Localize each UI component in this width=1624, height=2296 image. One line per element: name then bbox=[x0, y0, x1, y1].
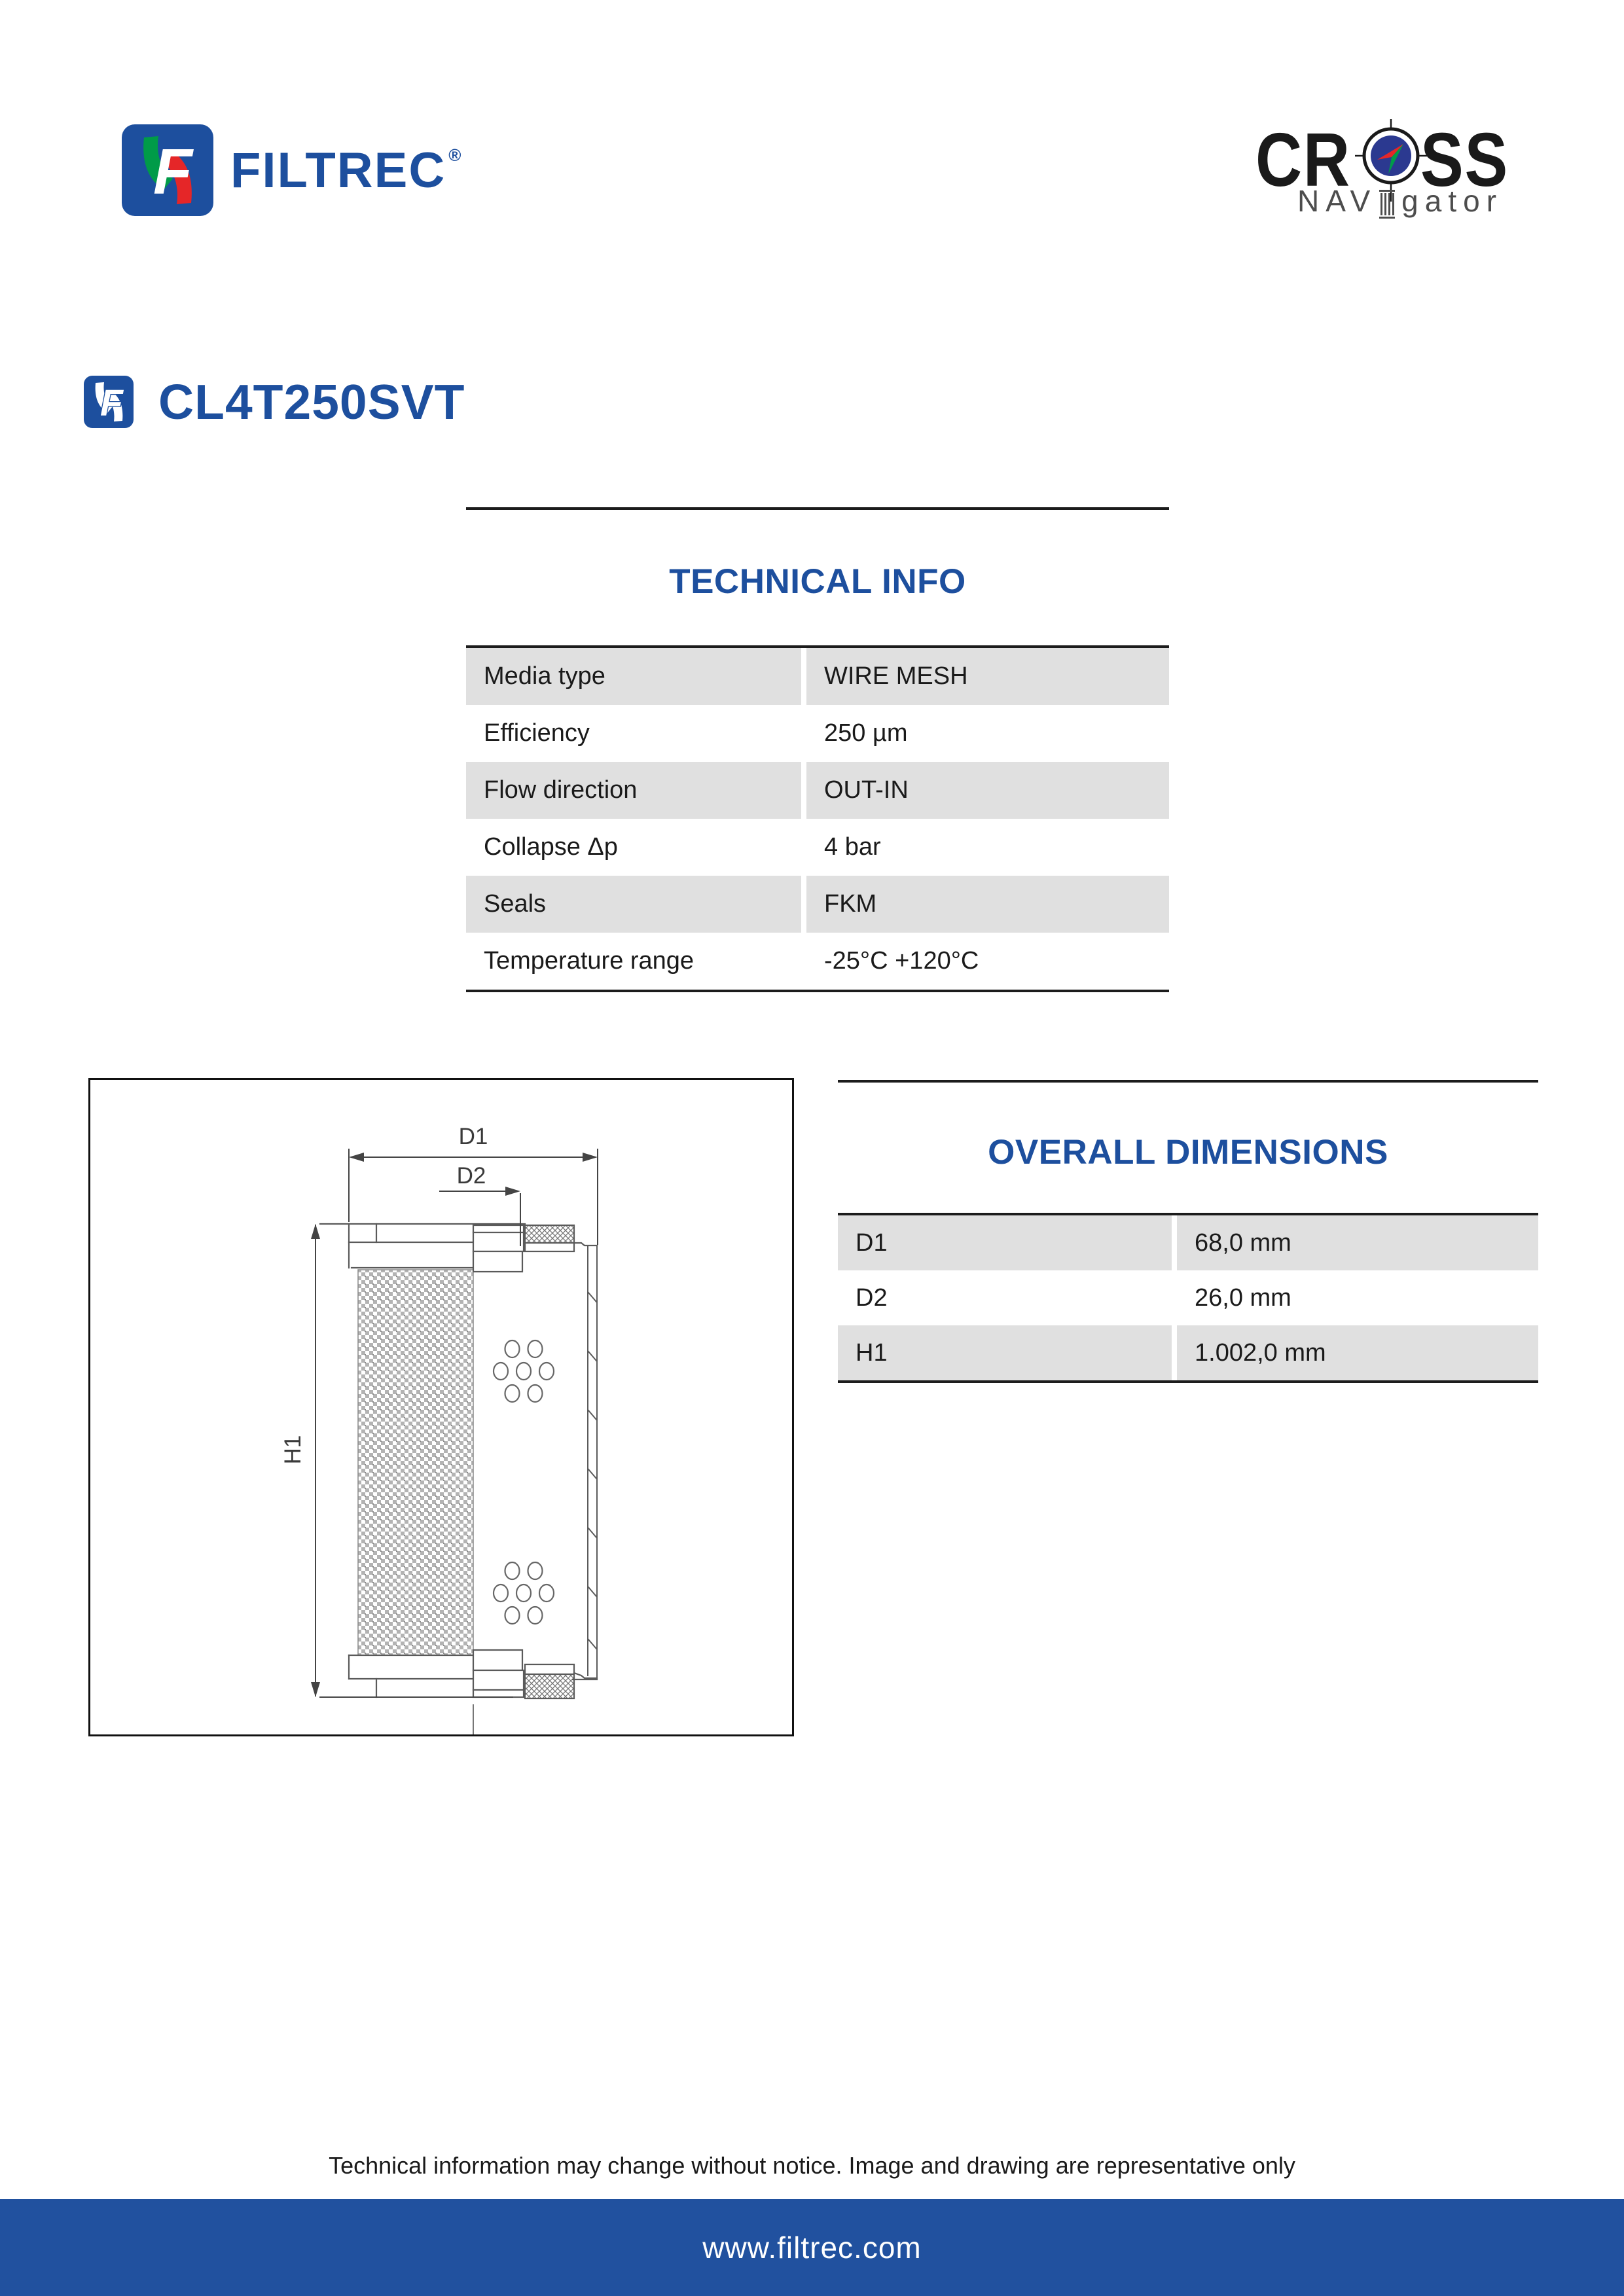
website-url: www.filtrec.com bbox=[702, 2230, 921, 2265]
row-value: FKM bbox=[806, 876, 1169, 933]
filtrec-logo-text: FILTREC bbox=[230, 143, 446, 198]
dim-label-d2: D2 bbox=[457, 1163, 486, 1189]
row-value: 250 µm bbox=[806, 705, 1169, 762]
dim-label-d1: D1 bbox=[459, 1124, 488, 1149]
footer-bar: www.filtrec.com bbox=[0, 2199, 1624, 2296]
column-gap bbox=[801, 705, 806, 762]
filtrec-logo: F FILTREC® bbox=[122, 124, 461, 216]
table-row: Media typeWIRE MESH bbox=[466, 648, 1169, 705]
filtrec-logo-icon: F bbox=[122, 124, 213, 216]
column-gap bbox=[1172, 1325, 1177, 1380]
row-label: Media type bbox=[466, 648, 801, 705]
svg-text:F: F bbox=[100, 382, 124, 424]
row-label: H1 bbox=[838, 1325, 1172, 1380]
row-label: Seals bbox=[466, 876, 801, 933]
row-label: Collapse Δp bbox=[466, 819, 801, 876]
row-value: 4 bar bbox=[806, 819, 1169, 876]
table-row: Temperature range-25°C +120°C bbox=[466, 933, 1169, 990]
table-row: H11.002,0 mm bbox=[838, 1325, 1538, 1380]
technical-info-title: TECHNICAL INFO bbox=[466, 564, 1169, 599]
product-code-icon: F bbox=[84, 376, 134, 428]
table-row: Flow directionOUT-IN bbox=[466, 762, 1169, 819]
overall-dimensions-rule bbox=[838, 1080, 1538, 1083]
perforation-holes-top bbox=[494, 1340, 554, 1402]
navigator-text-left: NAV bbox=[1297, 186, 1377, 216]
table-row: D168,0 mm bbox=[838, 1215, 1538, 1270]
row-value: 68,0 mm bbox=[1177, 1215, 1538, 1270]
row-label: D2 bbox=[838, 1270, 1172, 1325]
column-gap bbox=[801, 648, 806, 705]
outer-wall bbox=[588, 1246, 597, 1677]
dim-label-h1: H1 bbox=[280, 1435, 306, 1465]
column-gap bbox=[1172, 1270, 1177, 1325]
perforation-holes-bottom bbox=[494, 1562, 554, 1624]
overall-dimensions-title: OVERALL DIMENSIONS bbox=[838, 1135, 1538, 1170]
technical-info-rule bbox=[466, 507, 1169, 510]
technical-drawing-panel: D1 D2 H1 bbox=[88, 1078, 794, 1736]
technical-info-table: Media typeWIRE MESH Efficiency250 µm Flo… bbox=[466, 645, 1169, 992]
svg-text:F: F bbox=[153, 135, 194, 207]
filtrec-wordmark: FILTREC® bbox=[213, 145, 461, 196]
column-gap bbox=[801, 819, 806, 876]
row-value: OUT-IN bbox=[806, 762, 1169, 819]
bottom-end-cap bbox=[349, 1650, 597, 1698]
row-label: Efficiency bbox=[466, 705, 801, 762]
cross-navigator-logo: CR SS NAV gator bbox=[1255, 122, 1543, 226]
table-row: SealsFKM bbox=[466, 876, 1169, 933]
registered-mark: ® bbox=[448, 145, 461, 165]
column-gap bbox=[801, 933, 806, 990]
navigator-text-right: gator bbox=[1401, 186, 1503, 216]
table-row: Collapse Δp4 bar bbox=[466, 819, 1169, 876]
navigator-subline: NAV gator bbox=[1297, 186, 1503, 221]
row-label: D1 bbox=[838, 1215, 1172, 1270]
product-code: CL4T250SVT bbox=[158, 378, 465, 427]
footer-disclaimer: Technical information may change without… bbox=[0, 2152, 1624, 2179]
column-gap bbox=[801, 762, 806, 819]
row-value: 26,0 mm bbox=[1177, 1270, 1538, 1325]
row-value: 1.002,0 mm bbox=[1177, 1325, 1538, 1380]
row-value: -25°C +120°C bbox=[806, 933, 1169, 990]
table-row: D226,0 mm bbox=[838, 1270, 1538, 1325]
pillar-icon bbox=[1378, 186, 1396, 221]
overall-dimensions-table: D168,0 mm D226,0 mm H11.002,0 mm bbox=[838, 1213, 1538, 1383]
filter-element-drawing: D1 D2 H1 bbox=[90, 1080, 792, 1734]
column-gap bbox=[1172, 1215, 1177, 1270]
product-title-block: F CL4T250SVT bbox=[84, 376, 465, 428]
top-end-cap bbox=[320, 1224, 597, 1272]
row-value: WIRE MESH bbox=[806, 648, 1169, 705]
column-gap bbox=[801, 876, 806, 933]
row-label: Temperature range bbox=[466, 933, 801, 990]
row-label: Flow direction bbox=[466, 762, 801, 819]
mesh-media bbox=[358, 1270, 473, 1655]
table-row: Efficiency250 µm bbox=[466, 705, 1169, 762]
